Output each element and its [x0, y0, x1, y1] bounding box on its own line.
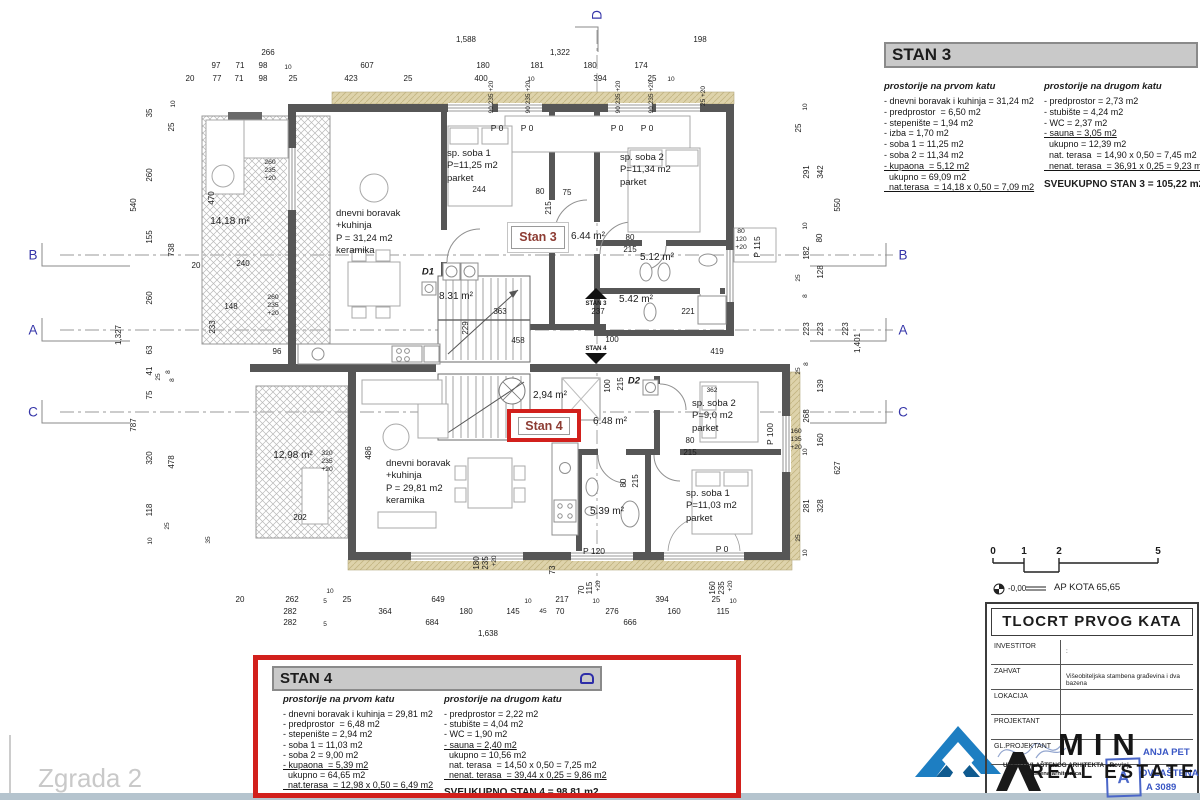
plan-annotation: 394 [655, 596, 668, 604]
plan-annotation: 20 [192, 262, 201, 270]
plan-annotation: 25 [156, 373, 163, 380]
plan-annotation: 684 [425, 619, 438, 627]
plan-annotation: 5.39 m² [590, 507, 624, 517]
plan-annotation: 6.44 m² [571, 232, 605, 242]
kota-value: -0,00 [1008, 584, 1026, 593]
plan-annotation: 215 [617, 377, 625, 390]
plan-annotation: 25 [796, 274, 803, 281]
plan-annotation: 5.12 m² [640, 253, 674, 263]
plan-annotation: 607 [360, 62, 373, 70]
plan-annotation: 666 [623, 619, 636, 627]
plan-annotation: 268 [803, 409, 811, 422]
plan-annotation: 10 [148, 537, 155, 544]
plan-annotation: A [28, 323, 37, 337]
plan-annotation: 25 [343, 596, 352, 604]
plan-annotation: 217 [555, 596, 568, 604]
plan-annotation: 202 [293, 514, 306, 522]
plan-annotation: 148 [224, 303, 237, 311]
plan-annotation: 75 [146, 391, 154, 400]
stan3-col1: prostorije na prvom katu - dnevni borava… [884, 81, 1034, 193]
plan-annotation: 260 [146, 291, 154, 304]
plan-annotation: 10 [326, 589, 333, 596]
plan-annotation: 77 [213, 75, 222, 83]
plan-annotation: 240 [236, 260, 249, 268]
plan-annotation: 215 [632, 474, 640, 487]
plan-annotation: 5 [323, 599, 327, 606]
stan3-col2-item: - stubište = 4,24 m2 [1044, 107, 1200, 118]
plan-annotation: 229 [462, 321, 470, 334]
title-block-row-value: : [1061, 640, 1193, 664]
plan-annotation: 5 [323, 622, 327, 629]
plan-annotation: 649 [431, 596, 444, 604]
plan-annotation: 25 [796, 367, 803, 374]
plan-annotation: 627 [834, 461, 842, 474]
plan-annotation: 237 [591, 308, 604, 316]
plan-annotation: P 0 [521, 124, 534, 133]
plan-annotation: C [898, 405, 908, 419]
plan-annotation: 20 [236, 596, 245, 604]
real-estate-logo-text: REAL ESTATE [1030, 762, 1197, 784]
plan-annotation: 45 [539, 609, 546, 616]
stan3-col1-item: - soba 2 = 11,34 m2 [884, 150, 1034, 161]
kota-label: AP KOTA 65,65 [1054, 582, 1120, 593]
plan-annotation: 1,327 [115, 325, 123, 345]
floorplan-page: 1,5881982661,322977198106071801811801742… [0, 0, 1200, 800]
stan3-col1-item: ukupno = 69,09 m2 [884, 172, 1034, 183]
plan-annotation: 71 [236, 62, 245, 70]
plan-annotation: 486 [365, 446, 373, 459]
title-block-row: ZAHVAT Višeobiteljska stambena građevina… [991, 665, 1193, 690]
plan-annotation: 215 [623, 246, 636, 254]
plan-annotation: 174 [634, 62, 647, 70]
plan-annotation: 80 [816, 234, 824, 243]
plan-annotation: 221 [681, 308, 694, 316]
plan-annotation: 8 [166, 370, 173, 374]
stamp-name: ANJA PET [1143, 747, 1190, 758]
plan-annotation: 90 235 +20 [526, 81, 533, 114]
plan-annotation: P 115 [753, 236, 762, 257]
plan-annotation: STAN 3 [586, 301, 607, 307]
plan-annotation: 262 [285, 596, 298, 604]
plan-annotation: 98 [259, 62, 268, 70]
plan-annotation: 281 [803, 499, 811, 512]
title-block-row: INVESTITOR : [991, 640, 1193, 665]
plan-annotation: 35 [206, 536, 213, 543]
plan-annotation: 80 [686, 437, 695, 445]
stan3-col2-item: - sauna = 3,05 m2 [1044, 128, 1200, 139]
plan-annotation: A [898, 323, 907, 337]
plan-annotation: 423 [344, 75, 357, 83]
plan-annotation: 8.31 m² [439, 292, 473, 302]
plan-annotation: 10 [803, 549, 810, 556]
plan-annotation: 100 [605, 336, 618, 344]
plan-annotation: STAN 4 [586, 346, 607, 352]
stan3-col1-item: - stepenište = 1,94 m2 [884, 118, 1034, 129]
plan-annotation: 223 [842, 322, 850, 335]
stan3-col2-header: prostorije na drugom katu [1044, 81, 1200, 92]
plan-annotation: 97 [212, 62, 221, 70]
plan-annotation: B [28, 248, 37, 262]
plan-annotation: 35 [146, 109, 154, 118]
plan-annotation: 25 +20 [701, 86, 708, 106]
plan-annotation: 235 [482, 556, 490, 569]
plan-annotation: 80 120 +20 [735, 228, 747, 252]
plan-annotation: 320 [146, 451, 154, 464]
plan-annotation: 223 [803, 322, 811, 335]
plan-annotation: 25 [712, 596, 721, 604]
plan-annotation: 10 [729, 599, 736, 606]
title-block-row: LOKACIJA [991, 690, 1193, 715]
plan-annotation: C [28, 405, 38, 419]
plan-annotation: 10 [803, 222, 810, 229]
plan-annotation: 215 [683, 449, 696, 457]
plan-annotation: 1,638 [478, 630, 498, 638]
drawing-title: TLOCRT PRVOG KATA [991, 608, 1193, 636]
plan-annotation: 10 [803, 448, 810, 455]
plan-annotation: dnevni boravak +kuhinja P = 29,81 m2 ker… [386, 458, 450, 507]
title-block-row-label: LOKACIJA [991, 690, 1061, 714]
stan4-plan-tag: Stan 4 [518, 417, 570, 435]
plan-annotation: 550 [834, 198, 842, 211]
plan-annotation: 14,18 m² [210, 217, 249, 227]
plan-annotation: 1,401 [854, 333, 862, 353]
plan-annotation: 70 [556, 608, 565, 616]
plan-annotation: 8 [170, 378, 177, 382]
plan-annotation: P 100 [766, 423, 775, 445]
stan3-col1-item: - izba = 1,70 m2 [884, 128, 1034, 139]
plan-annotation: 787 [130, 418, 138, 431]
plan-annotation: 2 [1056, 547, 1062, 557]
plan-annotation: 128 [817, 265, 825, 278]
plan-annotation: 0 [990, 547, 996, 557]
plan-annotation: 328 [817, 499, 825, 512]
plan-annotation: +20 [492, 555, 499, 566]
plan-annotation: 90 235 +20 [489, 81, 496, 114]
plan-annotation: 458 [511, 337, 524, 345]
plan-annotation: sp. soba 1 P=11,25 m2 parket [447, 148, 498, 185]
plan-annotation: 244 [472, 186, 485, 194]
plan-annotation: 96 [273, 348, 282, 356]
stan4-highlight-box [253, 655, 741, 798]
stan4-plan-tag-highlight: Stan 4 [507, 409, 581, 442]
plan-annotation: 1 [1021, 547, 1027, 557]
stan3-col2-item: - predprostor = 2,73 m2 [1044, 96, 1200, 107]
plan-annotation: 160 [709, 581, 717, 594]
plan-annotation: 25 [404, 75, 413, 83]
stan3-plan-tag: Stan 3 [511, 226, 565, 249]
plan-annotation: 25 [168, 123, 176, 132]
plan-annotation: sp. soba 2 P=11,34 m2 parket [620, 152, 671, 189]
plan-annotation: 180 [473, 556, 481, 569]
plan-annotation: 63 [146, 346, 154, 355]
plan-annotation: 282 [283, 608, 296, 616]
plan-annotation: 10 [667, 77, 674, 84]
stan3-col2-item: nat. terasa = 14,90 x 0,50 = 7,45 m2 [1044, 150, 1200, 161]
plan-annotation: 100 [604, 379, 612, 392]
plan-annotation: 266 [261, 49, 274, 57]
plan-annotation: 12,98 m² [273, 451, 312, 461]
stan3-col1-header: prostorije na prvom katu [884, 81, 1034, 92]
plan-annotation: 419 [710, 348, 723, 356]
plan-annotation: 233 [209, 320, 217, 333]
plan-annotation: 400 [474, 75, 487, 83]
title-block-row-label: INVESTITOR [991, 640, 1061, 664]
plan-annotation: 80 [620, 479, 628, 488]
plan-annotation: 10 [171, 100, 178, 107]
plan-annotation: 180 [459, 608, 472, 616]
plan-annotation: 470 [208, 191, 216, 204]
plan-annotation: 1,322 [550, 49, 570, 57]
plan-annotation: 342 [817, 165, 825, 178]
plan-annotation: 145 [506, 608, 519, 616]
plan-annotation: 738 [168, 243, 176, 256]
stan3-col1-item: nat.terasa = 14,18 x 0,50 = 7,09 m2 [884, 182, 1034, 193]
plan-annotation: 5.42 m² [619, 295, 653, 305]
plan-annotation: 364 [378, 608, 391, 616]
plan-annotation: 20 [186, 75, 195, 83]
min-logo-text: MIN [1058, 727, 1145, 763]
stan3-total: SVEUKUPNO STAN 3 = 105,22 m2 [1044, 179, 1200, 190]
plan-annotation: P 0 [491, 124, 504, 133]
stan3-col1-item: - dnevni boravak i kuhinja = 31,24 m2 [884, 96, 1034, 107]
plan-annotation: 8 [804, 362, 811, 366]
plan-annotation: 155 [146, 230, 154, 243]
plan-annotation: 320 235 +20 [321, 450, 333, 474]
plan-annotation: P 120 [583, 547, 605, 556]
plan-annotation: 71 [235, 75, 244, 83]
plan-annotation: 198 [693, 36, 706, 44]
stan3-col2-item: nenat. terasa = 36,91 x 0,25 = 9,23 m2 [1044, 161, 1200, 172]
title-block-row-value [1061, 690, 1193, 714]
plan-annotation: 25 [165, 522, 172, 529]
plan-annotation: 75 [563, 189, 572, 197]
stan3-col2-item: ukupno = 12,39 m2 [1044, 139, 1200, 150]
plan-annotation: B [898, 248, 907, 262]
plan-annotation: 8 [803, 294, 810, 298]
stan3-col2: prostorije na drugom katu - predprostor … [1044, 81, 1200, 190]
plan-annotation: 180 [476, 62, 489, 70]
plan-annotation: 260 235 +20 [267, 294, 279, 318]
plan-annotation: 90 235 +20 [616, 81, 623, 114]
plan-annotation: 276 [605, 608, 618, 616]
plan-annotation: 115 [717, 608, 730, 616]
plan-annotation: P 0 [641, 124, 654, 133]
plan-annotation: +20 [596, 580, 603, 591]
title-block-row-label: ZAHVAT [991, 665, 1061, 689]
plan-annotation: +20 [728, 580, 735, 591]
plan-annotation: 362 [707, 388, 718, 395]
plan-annotation: 98 [259, 75, 268, 83]
plan-annotation: 25 [289, 75, 298, 83]
plan-annotation: 478 [168, 455, 176, 468]
plan-annotation: 260 235 +20 [264, 159, 276, 183]
plan-annotation: 160 135 +20 [790, 428, 802, 452]
plan-annotation: 540 [130, 198, 138, 211]
plan-annotation: 181 [530, 62, 543, 70]
plan-annotation: 80 [536, 188, 545, 196]
title-block-row-label: GL.PROJEKTANT [991, 740, 1061, 764]
plan-annotation: 180 [583, 62, 596, 70]
plan-annotation: sp. soba 2 P=9,0 m2 parket [692, 398, 736, 435]
plan-annotation: 118 [146, 504, 154, 517]
plan-annotation: 215 [545, 201, 553, 214]
plan-annotation: D1 [422, 267, 434, 277]
plan-annotation: 10 [284, 65, 291, 72]
plan-annotation: 73 [549, 566, 557, 575]
plan-annotation: 25 [795, 124, 803, 133]
title-block-row-value: Višeobiteljska stambena građevina i dva … [1061, 665, 1193, 689]
plan-annotation: 223 [817, 322, 825, 335]
plan-annotation: 160 [667, 608, 680, 616]
plan-annotation: 260 [146, 168, 154, 181]
plan-annotation: P 0 [611, 124, 624, 133]
stan3-col1-item: - soba 1 = 11,25 m2 [884, 139, 1034, 150]
plan-annotation: D [590, 10, 604, 20]
plan-annotation: 25 [796, 534, 803, 541]
plan-annotation: 5 [1155, 547, 1161, 557]
plan-annotation: 41 [146, 367, 154, 376]
plan-annotation: 10 [592, 599, 599, 606]
plan-annotation: dnevni boravak +kuhinja P = 31,24 m2 ker… [336, 208, 400, 257]
plan-annotation: 182 [803, 246, 811, 259]
plan-annotation: 90 235 +20 [649, 81, 656, 114]
title-block-row-label: PROJEKTANT [991, 715, 1061, 739]
plan-annotation: 1,588 [456, 36, 476, 44]
plan-annotation: P 0 [716, 545, 729, 554]
plan-annotation: 282 [283, 619, 296, 627]
stan3-panel-title: STAN 3 [892, 45, 951, 65]
plan-annotation: 291 [803, 165, 811, 178]
stan3-col1-item: - predprostor = 6,50 m2 [884, 107, 1034, 118]
plan-annotation: 139 [817, 379, 825, 392]
stan3-col2-item: - WC = 2,37 m2 [1044, 118, 1200, 129]
stan3-col1-item: - kupaona = 5,12 m2 [884, 161, 1034, 172]
stan3-panel-header: STAN 3 [884, 42, 1198, 68]
plan-annotation: sp. soba 1 P=11,03 m2 parket [686, 488, 737, 525]
plan-annotation: 80 [626, 234, 635, 242]
plan-annotation: 10 [524, 599, 531, 606]
plan-annotation: 235 [718, 581, 726, 594]
plan-annotation: 2,94 m² [533, 391, 567, 401]
plan-annotation: 6.48 m² [593, 417, 627, 427]
plan-annotation: D2 [628, 376, 640, 386]
plan-annotation: 394 [593, 75, 606, 83]
plan-annotation: 363 [493, 308, 506, 316]
plan-annotation: 160 [817, 433, 825, 446]
plan-annotation: 10 [803, 103, 810, 110]
plan-annotation: 115 [586, 582, 594, 595]
